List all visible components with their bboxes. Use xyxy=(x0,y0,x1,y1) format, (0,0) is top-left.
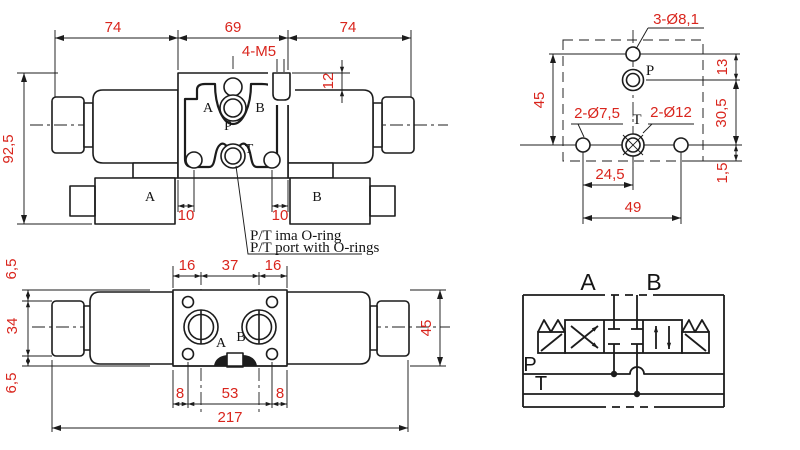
right-knurled-nut-bottom xyxy=(377,301,409,356)
dim-stud-offset: 12 xyxy=(320,73,337,90)
port-a-label: A xyxy=(203,101,214,116)
schematic-port-a-label: A xyxy=(580,269,596,295)
port-p-label: P xyxy=(224,119,232,134)
dim-span-center: 69 xyxy=(225,19,242,36)
connector-block-b xyxy=(290,178,370,224)
port-p-hole-face xyxy=(623,70,644,91)
dim-span-right: 74 xyxy=(340,19,357,36)
note-line-2: P/T port with O-rings xyxy=(250,240,379,256)
dim-port-b-offset: 16 xyxy=(265,257,282,274)
dim-height-front: 92,5 xyxy=(0,134,17,163)
mounting-face-view: 3-Ø8,1 45 13 30,5 1,5 2-Ø7,5 2-Ø12 24,5 … xyxy=(520,11,742,224)
dim-nut-width: 34 xyxy=(4,318,21,335)
bottom-port-a-label: A xyxy=(216,336,227,351)
left-knurled-nut-bottom xyxy=(52,301,84,356)
valve-dimensional-drawing: 74 69 74 92,5 4-M5 12 10 10 A B P xyxy=(0,0,800,450)
bottom-view: 16 37 16 6,5 34 6,5 8 53 8 xyxy=(3,257,450,432)
connector-b-label: B xyxy=(312,190,321,205)
dim-face-height: 45 xyxy=(531,92,548,109)
dim-p-offset: 13 xyxy=(714,59,731,76)
mount-hole-top xyxy=(626,47,640,61)
callout-port-holes: 2-Ø12 xyxy=(650,104,692,121)
technical-drawing-canvas: 74 69 74 92,5 4-M5 12 10 10 A B P xyxy=(0,0,800,450)
locating-hole-left xyxy=(576,138,590,152)
front-view-body xyxy=(30,56,448,224)
connector-block-a xyxy=(95,178,175,224)
dim-hole-spacing-bottom: 53 xyxy=(222,385,239,402)
callout-mount-holes: 3-Ø8,1 xyxy=(653,11,699,28)
dim-hole-offset-right: 8 xyxy=(276,385,284,402)
connector-a-label: A xyxy=(145,190,156,205)
dim-pt-offset: 30,5 xyxy=(713,98,730,127)
callout-locating-holes: 2-Ø7,5 xyxy=(574,105,620,122)
p-line xyxy=(523,367,724,374)
dim-total-length: 217 xyxy=(217,409,242,426)
top-screw-hole xyxy=(224,78,242,96)
port-t-label: T xyxy=(245,142,254,157)
hydraulic-schematic: A B P T xyxy=(523,269,724,407)
dim-hole-spacing: 49 xyxy=(625,199,642,216)
dim-body-height: 45 xyxy=(418,320,435,337)
face-port-p-label: P xyxy=(646,63,654,79)
dim-port-a-offset: 16 xyxy=(179,257,196,274)
dim-t-spacing: 24,5 xyxy=(595,166,624,183)
dim-hole-offset-left: 8 xyxy=(176,385,184,402)
dim-edge-top: 6,5 xyxy=(3,259,20,280)
thread-callout: 4-M5 xyxy=(242,43,276,60)
dim-span-left: 74 xyxy=(105,19,122,36)
dim-bottom-offset: 1,5 xyxy=(714,163,731,184)
schematic-port-t-label: T xyxy=(535,373,547,395)
bottom-port-b-label: B xyxy=(236,330,245,345)
dim-port-offset-right: 10 xyxy=(272,207,289,224)
locating-hole-right xyxy=(674,138,688,152)
schematic-port-b-label: B xyxy=(646,269,661,295)
port-b-label: B xyxy=(255,101,264,116)
dim-port-offset-left: 10 xyxy=(178,207,195,224)
dim-edge-bottom: 6,5 xyxy=(3,373,20,394)
front-view: 74 69 74 92,5 4-M5 12 10 10 A B P xyxy=(0,19,448,256)
dim-port-spacing: 37 xyxy=(222,257,239,274)
face-port-t-label: T xyxy=(632,112,641,128)
